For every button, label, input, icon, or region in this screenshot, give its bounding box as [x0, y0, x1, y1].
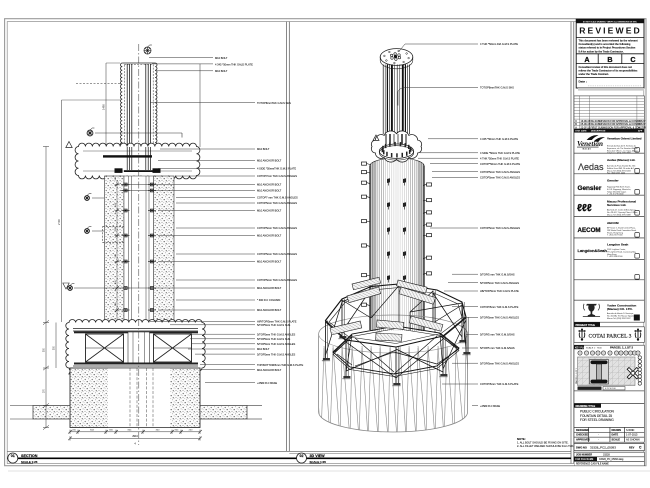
- svg-text:19-08-15: 19-08-15: [581, 120, 591, 123]
- svg-text:DESCRIPTION: DESCRIPTION: [591, 131, 606, 133]
- svg-text:ℓℓℓ: ℓℓℓ: [577, 203, 592, 214]
- svg-text:Gensler: Gensler: [607, 179, 619, 183]
- svg-text:NOTE:: NOTE:: [517, 437, 526, 441]
- svg-text:2944: 2944: [132, 435, 138, 438]
- svg-text:relieve the Trade Contracto: relieve the Trade Contractor of its resp…: [579, 69, 639, 72]
- svg-text:Macau Tel: (853) 2871 5033: Macau Tel: (853) 2871 5033: [607, 170, 631, 172]
- svg-text:Consultant review of this: Consultant review of this document does …: [579, 66, 633, 69]
- svg-text:C: C: [630, 55, 635, 64]
- svg-text:SYM: SYM: [575, 131, 580, 133]
- svg-text:APPROVED: APPROVED: [576, 439, 590, 442]
- svg-text:DATE: DATE: [612, 434, 619, 437]
- svg-text:C: C: [638, 120, 640, 123]
- svg-text:FOUNTAIN DETAIL 25: FOUNTAIN DETAIL 25: [580, 414, 612, 418]
- svg-text:SECTION: SECTION: [21, 454, 38, 458]
- svg-text:(Macau) CO. LTD.: (Macau) CO. LTD.: [607, 307, 633, 311]
- svg-text:RE-SUBMISSION FOR APPROVAL & C: RE-SUBMISSION FOR APPROVAL & CONSTRUCTIO…: [591, 123, 650, 126]
- svg-text:status referred to in Pr: status referred to in Project Procedures…: [579, 47, 636, 50]
- svg-text:3D VIEW: 3D VIEW: [310, 454, 326, 458]
- svg-text:Λedas: Λedas: [578, 162, 604, 172]
- svg-text:31528_PC_05093.dwg: 31528_PC_05093.dwg: [599, 458, 624, 461]
- svg-text:Tokyo 106-0032 Japan: Tokyo 106-0032 Japan: [607, 191, 626, 193]
- svg-text:1-07-2015: 1-07-2015: [626, 434, 638, 437]
- svg-text:Langdon&Seah: Langdon&Seah: [578, 248, 608, 253]
- svg-text:Macau Tel: (853) 2875 3088: Macau Tel: (853) 2875 3088: [607, 214, 631, 216]
- svg-text:CHECKED: CHECKED: [576, 434, 589, 437]
- svg-text:T +852 2317 7000: T +852 2317 7000: [607, 235, 622, 237]
- svg-text:31528_PC2_05093: 31528_PC2_05093: [590, 445, 616, 449]
- svg-text:DRAWING TITLE: DRAWING TITLE: [576, 405, 596, 408]
- svg-text:31528: 31528: [603, 454, 610, 457]
- svg-text:AΕCOM: AΕCOM: [578, 227, 601, 234]
- svg-text:0 25 50 100: 0 25 50 100: [605, 388, 616, 390]
- svg-text:S.WND: S.WND: [626, 429, 635, 432]
- svg-text:Fax: (853) 2871 5033: Fax: (853) 2871 5033: [607, 173, 625, 175]
- svg-text:AECOM: AECOM: [607, 221, 619, 225]
- svg-text:C: C: [575, 120, 577, 123]
- svg-text:PUBLIC CIRCULATION: PUBLIC CIRCULATION: [580, 410, 614, 414]
- svg-text:05-08-15: 05-08-15: [581, 123, 591, 126]
- svg-text:This document has been rev: This document has been reviewed by the r…: [579, 40, 638, 43]
- svg-text:DESIGNED: DESIGNED: [576, 429, 589, 432]
- svg-text:Hong Kong: Hong Kong: [607, 254, 616, 256]
- svg-text:Macau Tel: (853) 2832 9937: Macau Tel: (853) 2832 9937: [607, 318, 631, 320]
- svg-text:RE-SUBMISSION FOR APPROVAL & C: RE-SUBMISSION FOR APPROVAL & CONSTRUCTIO…: [591, 120, 650, 123]
- svg-text:Date :: Date :: [579, 79, 587, 83]
- svg-text:Consultant(s) and is accord: Consultant(s) and is accorded the follow…: [579, 43, 631, 46]
- svg-text:5.4 for action by the Tra: 5.4 for action by the Trade Contractor.: [579, 50, 624, 53]
- svg-text:A: A: [584, 55, 589, 64]
- svg-text:AS SHOWN: AS SHOWN: [626, 439, 640, 442]
- svg-text:Telephone: (853) 2882 8888: Telephone: (853) 2882 8888: [607, 153, 631, 155]
- svg-text:T + 81 3 5770 4600: T + 81 3 5770 4600: [607, 194, 623, 196]
- svg-text:PROJECT TITLE: PROJECT TITLE: [576, 324, 596, 327]
- svg-text:Venetian Orient Limited: Venetian Orient Limited: [607, 137, 642, 141]
- svg-text:REVIEWED: REVIEWED: [579, 26, 642, 36]
- svg-text:Langdon Seah: Langdon Seah: [607, 243, 628, 247]
- svg-text:FOR STEEL DRAWING: FOR STEEL DRAWING: [580, 418, 614, 422]
- svg-text:JOB NUMBER: JOB NUMBER: [576, 454, 592, 457]
- svg-text:under the Trade Contract.: under the Trade Contract.: [579, 73, 610, 76]
- svg-text:Services Ltd.: Services Ltd.: [607, 203, 626, 207]
- svg-text:01: 01: [11, 454, 15, 458]
- svg-text:DRAWN: DRAWN: [612, 429, 622, 432]
- svg-text:PARCEL 1, LOT 2: PARCEL 1, LOT 2: [610, 346, 633, 350]
- svg-text:02: 02: [300, 454, 304, 458]
- svg-text:Gensler: Gensler: [578, 185, 602, 192]
- svg-text:B: B: [607, 55, 612, 64]
- svg-text:T +852 2830 3500: T +852 2830 3500: [607, 256, 622, 258]
- svg-text:Aedas (Macau) Ltd.: Aedas (Macau) Ltd.: [607, 158, 636, 162]
- svg-text:SCALE: SCALE: [612, 439, 621, 442]
- svg-text:COTAI PARCEL 3: COTAI PARCEL 3: [589, 333, 632, 339]
